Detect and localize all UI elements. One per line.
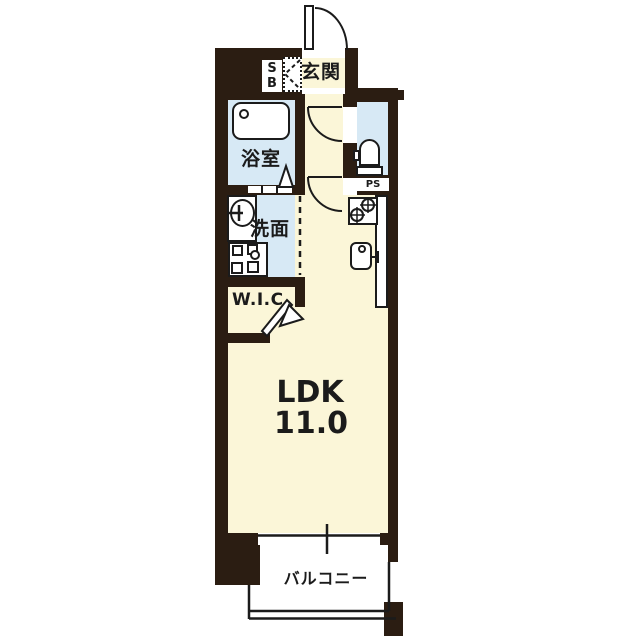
genkan-label: 玄関: [301, 62, 341, 84]
genkan-closet-fold-line: [285, 60, 300, 89]
bathroom-label: 浴室: [241, 149, 281, 171]
entrance-door-arc: [315, 8, 347, 50]
ldk-door-arc: [308, 177, 342, 211]
ldk-label: LDK 11.0: [274, 377, 346, 439]
ldk-size: 11.0: [274, 408, 346, 439]
toilet-door-arc: [308, 107, 342, 141]
ldk-name: LDK: [274, 377, 346, 408]
shoebox-label: SB: [265, 61, 279, 91]
floorplan: 玄関 SB 浴室 洗面 W.I.C PS LDK 11.0 バルコニー: [0, 0, 640, 640]
plan-linework: [0, 0, 640, 640]
wic-label: W.I.C: [232, 291, 284, 311]
ps-label: PS: [357, 179, 389, 191]
bathroom-door-triangle: [279, 166, 293, 187]
balcony-label: バルコニー: [278, 570, 374, 588]
washroom-label: 洗面: [250, 219, 290, 241]
